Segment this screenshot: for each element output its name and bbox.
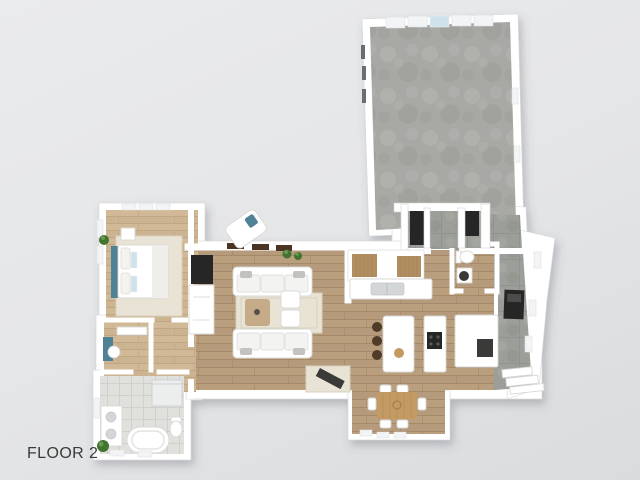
toilet — [460, 251, 474, 263]
dining-chair — [380, 420, 391, 428]
shelf — [117, 327, 147, 335]
bonus-room-carpet — [370, 22, 516, 230]
window — [94, 398, 100, 418]
folded-blanket — [152, 245, 168, 298]
dining-chair — [397, 420, 408, 428]
dining-chair — [418, 398, 426, 410]
accent-pillow — [131, 252, 137, 268]
dining-chair — [380, 385, 391, 393]
window — [156, 204, 170, 210]
pillow — [121, 273, 130, 294]
floorplan-rendering — [0, 0, 640, 480]
cooktop — [427, 332, 442, 349]
fruit-bowl — [394, 348, 404, 358]
dining-chair — [368, 398, 376, 410]
side-window — [362, 66, 366, 80]
table-decor — [254, 309, 260, 315]
window — [139, 204, 153, 210]
pendant-light — [393, 401, 401, 409]
storage-closet — [465, 211, 479, 236]
sofa — [233, 329, 312, 358]
sofa — [233, 267, 312, 296]
window-frame — [276, 245, 292, 251]
staircase — [348, 250, 424, 281]
dining-chair — [397, 385, 408, 393]
window — [529, 300, 536, 316]
room-kitchen — [372, 315, 498, 372]
side-window — [362, 89, 366, 103]
window — [138, 451, 152, 457]
window — [377, 432, 389, 438]
headboard — [111, 246, 118, 298]
window — [360, 430, 372, 436]
kitchen-island — [383, 316, 414, 372]
floor-label: FLOOR 2 — [27, 445, 98, 463]
bar-stool — [372, 322, 382, 332]
window — [525, 336, 532, 352]
window — [452, 15, 471, 26]
sink — [106, 412, 116, 422]
side-window — [512, 88, 518, 104]
tv-fireplace — [191, 255, 213, 284]
window — [97, 246, 103, 264]
nightstand — [121, 228, 135, 240]
sink — [106, 429, 116, 439]
armchair — [281, 310, 300, 327]
armchair — [281, 291, 300, 308]
window — [408, 16, 427, 27]
pillow — [121, 248, 130, 269]
window-frame — [252, 244, 269, 250]
media-console — [189, 285, 214, 334]
window — [97, 220, 103, 238]
side-window — [361, 45, 365, 59]
window — [430, 16, 449, 27]
room-mudroom — [394, 203, 490, 250]
window — [534, 252, 541, 268]
window — [474, 15, 493, 26]
window — [394, 432, 406, 438]
storage-closet — [410, 211, 424, 245]
bar-stool — [372, 350, 382, 360]
plant — [97, 440, 109, 452]
kitchen-sink-counter — [350, 279, 432, 299]
floorplan-canvas: FLOOR 2 — [0, 0, 640, 480]
window — [110, 450, 124, 456]
bar-stool — [372, 336, 382, 346]
closet-chair — [108, 346, 120, 358]
refrigerator — [477, 339, 493, 357]
vessel-sink — [459, 271, 469, 281]
window — [386, 17, 405, 28]
window — [122, 204, 136, 210]
accent-pillow — [131, 276, 137, 292]
toilet — [170, 421, 182, 437]
side-window — [514, 146, 520, 162]
